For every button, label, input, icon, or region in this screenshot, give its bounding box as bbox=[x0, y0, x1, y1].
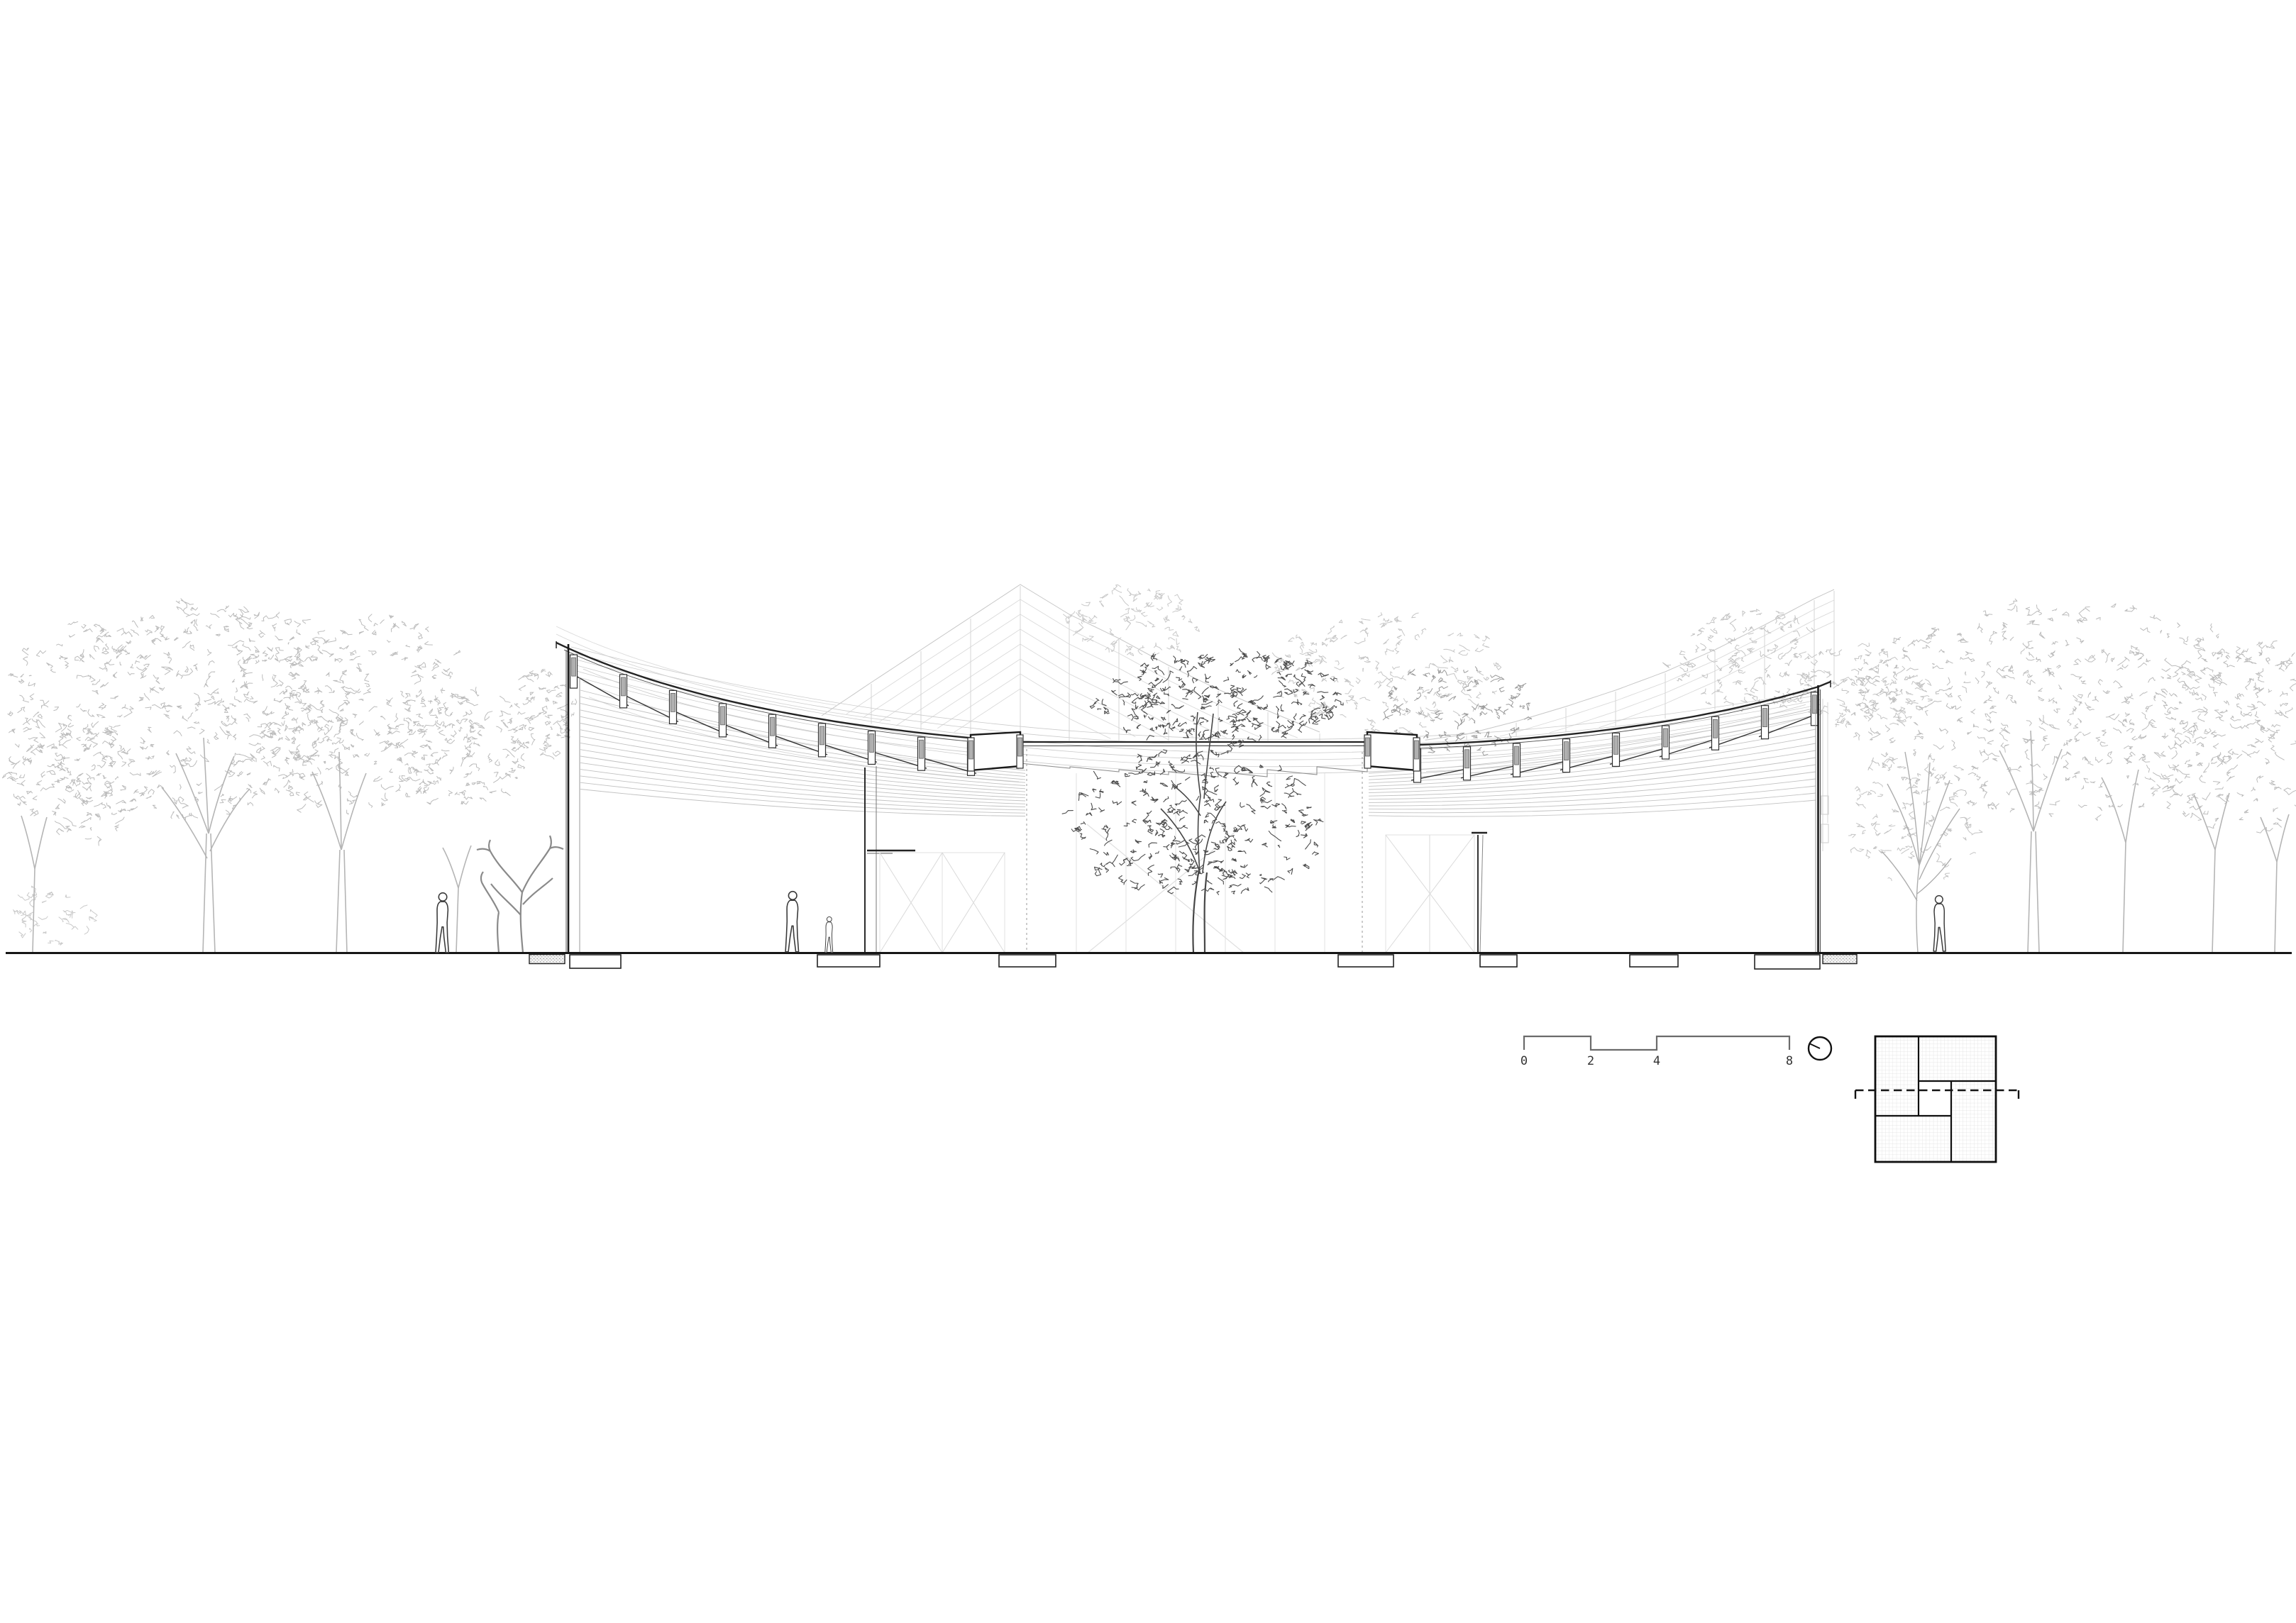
scale-label-4: 4 bbox=[1653, 1054, 1660, 1068]
scale-label-8: 8 bbox=[1786, 1054, 1793, 1068]
paper-background bbox=[0, 0, 2296, 1623]
scale-label-0: 0 bbox=[1520, 1054, 1528, 1068]
key-plan-room-topright bbox=[1919, 1036, 1996, 1081]
key-plan-room-topleft bbox=[1875, 1036, 1919, 1116]
key-plan-room-bottom bbox=[1875, 1116, 1951, 1162]
key-plan-courtyard bbox=[1919, 1081, 1951, 1116]
section-drawing: 0 2 4 8 bbox=[0, 0, 2296, 1623]
key-plan bbox=[1855, 1036, 2019, 1162]
drawing-sheet: 0 2 4 8 bbox=[0, 0, 2296, 1623]
scale-label-2: 2 bbox=[1587, 1054, 1594, 1068]
key-plan-room-right bbox=[1951, 1081, 1996, 1162]
